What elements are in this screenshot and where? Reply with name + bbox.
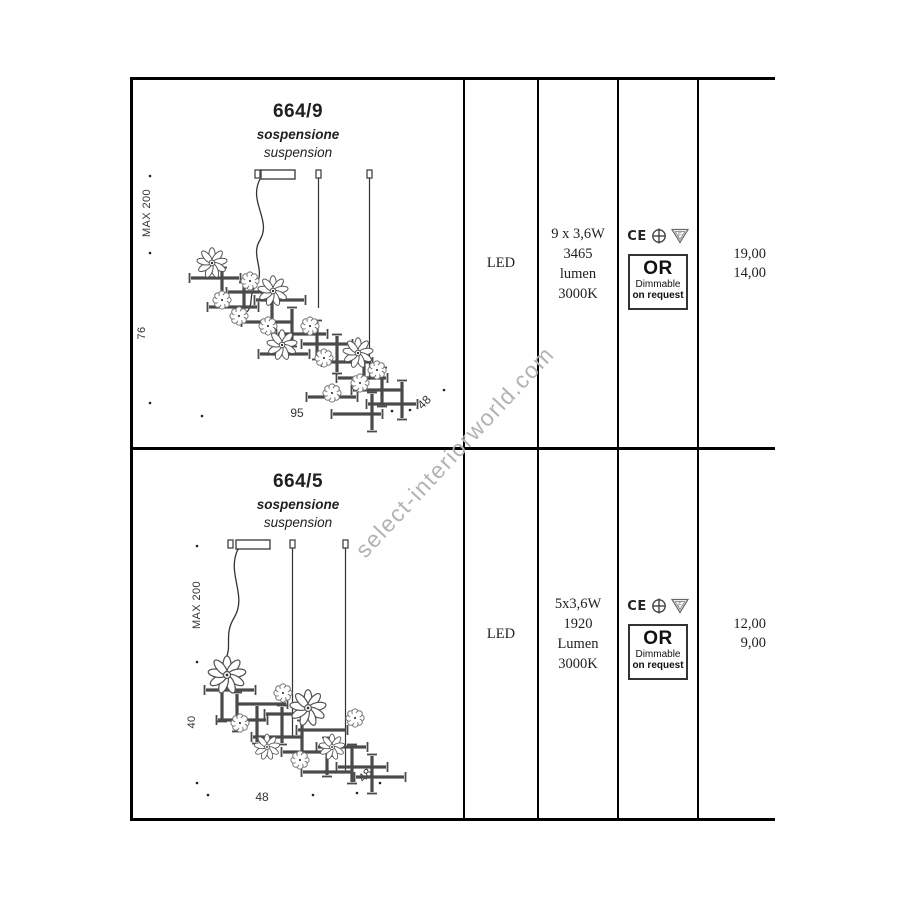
spec-lumen-value: 1920 xyxy=(555,614,601,634)
dimmable-on-request-box: OR Dimmable on request xyxy=(628,254,688,310)
specs-cell: 5x3,6W 1920 Lumen 3000K xyxy=(537,450,617,818)
catalog-sheet: F 664/9 sospensione suspension xyxy=(0,0,900,900)
or-label: OR xyxy=(630,629,686,649)
product-spec-table: 664/9 sospensione suspension MAX 200 76 xyxy=(130,77,775,821)
drawing-cell: 664/5 sospensione suspension MAX 200 40 … xyxy=(133,450,463,818)
lamp-type-cell: LED xyxy=(463,450,537,818)
spec-wattage: 5x3,6W xyxy=(555,594,601,614)
spec-color-temp: 3000K xyxy=(551,284,605,304)
price-value-2: 9,00 xyxy=(741,634,766,653)
on-request-label: on request xyxy=(630,660,686,671)
lamp-type-label: LED xyxy=(487,255,515,272)
dim-side-label: 40 xyxy=(186,715,198,728)
price-value-2: 14,00 xyxy=(733,264,766,283)
suspension-canopy xyxy=(255,170,372,179)
lamp-type-label: LED xyxy=(487,626,515,643)
dimmable-label: Dimmable xyxy=(630,279,686,290)
product-title-block: 664/5 sospensione suspension xyxy=(133,471,463,530)
price-cell: 19,00 14,00 xyxy=(697,80,772,447)
dimmable-on-request-box: OR Dimmable on request xyxy=(628,624,688,680)
or-label: OR xyxy=(630,259,686,279)
power-cord xyxy=(225,549,239,670)
price-value-1: 12,00 xyxy=(733,615,766,634)
specs-block: 9 x 3,6W 3465 lumen 3000K xyxy=(551,224,605,304)
spec-lumen-unit: Lumen xyxy=(555,634,601,654)
dim-width-label: 48 xyxy=(255,790,269,804)
certification-icons: CE xyxy=(619,598,697,614)
dim-width-label: 95 xyxy=(290,406,304,420)
lamp-type-cell: LED xyxy=(463,80,537,447)
specs-cell: 9 x 3,6W 3465 lumen 3000K xyxy=(537,80,617,447)
type-italian: sospensione xyxy=(133,127,463,142)
spec-color-temp: 3000K xyxy=(555,654,601,674)
model-number: 664/5 xyxy=(133,471,463,493)
certification-icons: CE xyxy=(619,228,697,244)
dim-max-height-label: MAX 200 xyxy=(191,581,203,629)
suspension-canopy xyxy=(228,540,348,549)
dim-side-label: 76 xyxy=(136,326,148,339)
drawing-cell: 664/9 sospensione suspension MAX 200 76 xyxy=(133,80,463,447)
model-number: 664/9 xyxy=(133,101,463,123)
price-cell: 12,00 9,00 xyxy=(697,450,772,818)
product-row-664-5: 664/5 sospensione suspension MAX 200 40 … xyxy=(133,450,775,818)
type-english: suspension xyxy=(133,145,463,160)
specs-block: 5x3,6W 1920 Lumen 3000K xyxy=(555,594,601,674)
spec-wattage: 9 x 3,6W xyxy=(551,224,605,244)
f-triangle-icon xyxy=(671,598,689,614)
on-request-label: on request xyxy=(630,290,686,301)
spec-lumen-value: 3465 xyxy=(551,244,605,264)
ce-mark-icon: CE xyxy=(627,599,646,614)
earth-cross-circle-icon xyxy=(651,598,667,614)
ce-mark-icon: CE xyxy=(627,229,646,244)
price-value-1: 19,00 xyxy=(733,245,766,264)
earth-cross-circle-icon xyxy=(651,228,667,244)
product-title-block: 664/9 sospensione suspension xyxy=(133,101,463,160)
spec-lumen-unit: lumen xyxy=(551,264,605,284)
certification-cell: CE OR Dimmable on request xyxy=(617,80,697,447)
dimmable-label: Dimmable xyxy=(630,649,686,660)
certification-cell: CE OR Dimmable on request xyxy=(617,450,697,818)
f-triangle-icon xyxy=(671,228,689,244)
dim-max-height-label: MAX 200 xyxy=(141,189,153,237)
type-english: suspension xyxy=(133,515,463,530)
product-row-664-9: 664/9 sospensione suspension MAX 200 76 xyxy=(133,80,775,450)
type-italian: sospensione xyxy=(133,497,463,512)
